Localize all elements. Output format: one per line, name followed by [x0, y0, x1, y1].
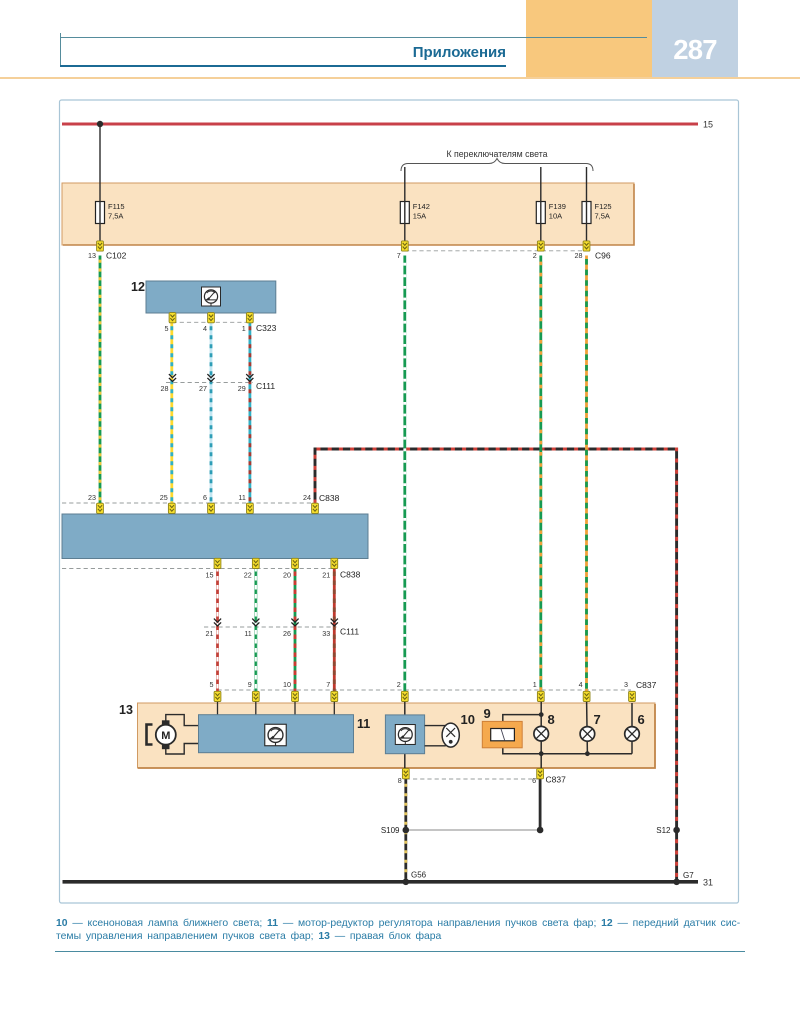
svg-text:M: M: [161, 730, 170, 742]
svg-text:S12: S12: [656, 826, 671, 835]
svg-text:15: 15: [206, 571, 214, 580]
svg-text:6: 6: [638, 712, 645, 727]
svg-text:13: 13: [88, 251, 96, 260]
svg-text:25: 25: [160, 493, 168, 502]
svg-text:5: 5: [165, 324, 169, 333]
svg-text:C102: C102: [106, 251, 127, 261]
svg-text:4: 4: [579, 680, 583, 689]
svg-text:3: 3: [624, 680, 628, 689]
svg-text:10: 10: [461, 712, 475, 727]
svg-text:23: 23: [88, 493, 96, 502]
svg-text:11: 11: [244, 629, 251, 638]
svg-text:C111: C111: [340, 627, 359, 637]
svg-text:11: 11: [357, 717, 370, 731]
svg-text:15A: 15A: [413, 212, 426, 221]
svg-text:4: 4: [203, 324, 207, 333]
svg-text:20: 20: [283, 571, 291, 580]
svg-text:15: 15: [703, 120, 713, 130]
svg-text:C111: C111: [256, 381, 275, 391]
svg-text:29: 29: [238, 384, 246, 393]
svg-text:33: 33: [322, 629, 330, 638]
svg-text:9: 9: [248, 680, 252, 689]
svg-text:11: 11: [238, 493, 245, 502]
svg-text:C838: C838: [319, 493, 340, 503]
svg-text:26: 26: [283, 629, 291, 638]
svg-text:6: 6: [203, 493, 207, 502]
svg-text:2: 2: [533, 251, 537, 260]
svg-text:2: 2: [397, 680, 401, 689]
svg-text:7: 7: [594, 712, 601, 727]
svg-text:21: 21: [322, 571, 330, 580]
svg-text:5: 5: [210, 680, 214, 689]
svg-text:C838: C838: [340, 570, 361, 580]
svg-text:F139: F139: [549, 202, 566, 211]
svg-text:31: 31: [703, 877, 713, 887]
svg-text:7: 7: [326, 680, 330, 689]
svg-text:F142: F142: [413, 202, 430, 211]
svg-text:8: 8: [398, 776, 402, 785]
svg-text:7: 7: [397, 251, 401, 260]
svg-text:F115: F115: [108, 202, 125, 211]
svg-text:10: 10: [283, 680, 291, 689]
svg-text:C837: C837: [636, 680, 657, 690]
svg-text:G56: G56: [411, 871, 427, 880]
svg-text:1: 1: [533, 680, 537, 689]
svg-text:27: 27: [199, 384, 207, 393]
svg-text:7,5A: 7,5A: [595, 212, 610, 221]
svg-text:13: 13: [119, 703, 133, 717]
svg-text:8: 8: [548, 712, 555, 727]
svg-text:G7: G7: [683, 871, 694, 880]
svg-text:C323: C323: [256, 323, 277, 333]
svg-text:F125: F125: [595, 202, 612, 211]
svg-text:C96: C96: [595, 251, 611, 261]
svg-text:9: 9: [484, 706, 491, 721]
svg-text:6: 6: [532, 776, 536, 785]
svg-text:22: 22: [244, 571, 252, 580]
svg-text:1: 1: [242, 324, 246, 333]
svg-text:28: 28: [575, 251, 583, 260]
svg-text:24: 24: [303, 493, 311, 502]
svg-text:21: 21: [206, 629, 214, 638]
svg-text:10A: 10A: [549, 212, 562, 221]
svg-text:S109: S109: [381, 826, 400, 835]
svg-text:C837: C837: [546, 775, 567, 785]
svg-text:7,5A: 7,5A: [108, 212, 123, 221]
svg-text:28: 28: [161, 384, 169, 393]
svg-text:12: 12: [131, 280, 145, 294]
